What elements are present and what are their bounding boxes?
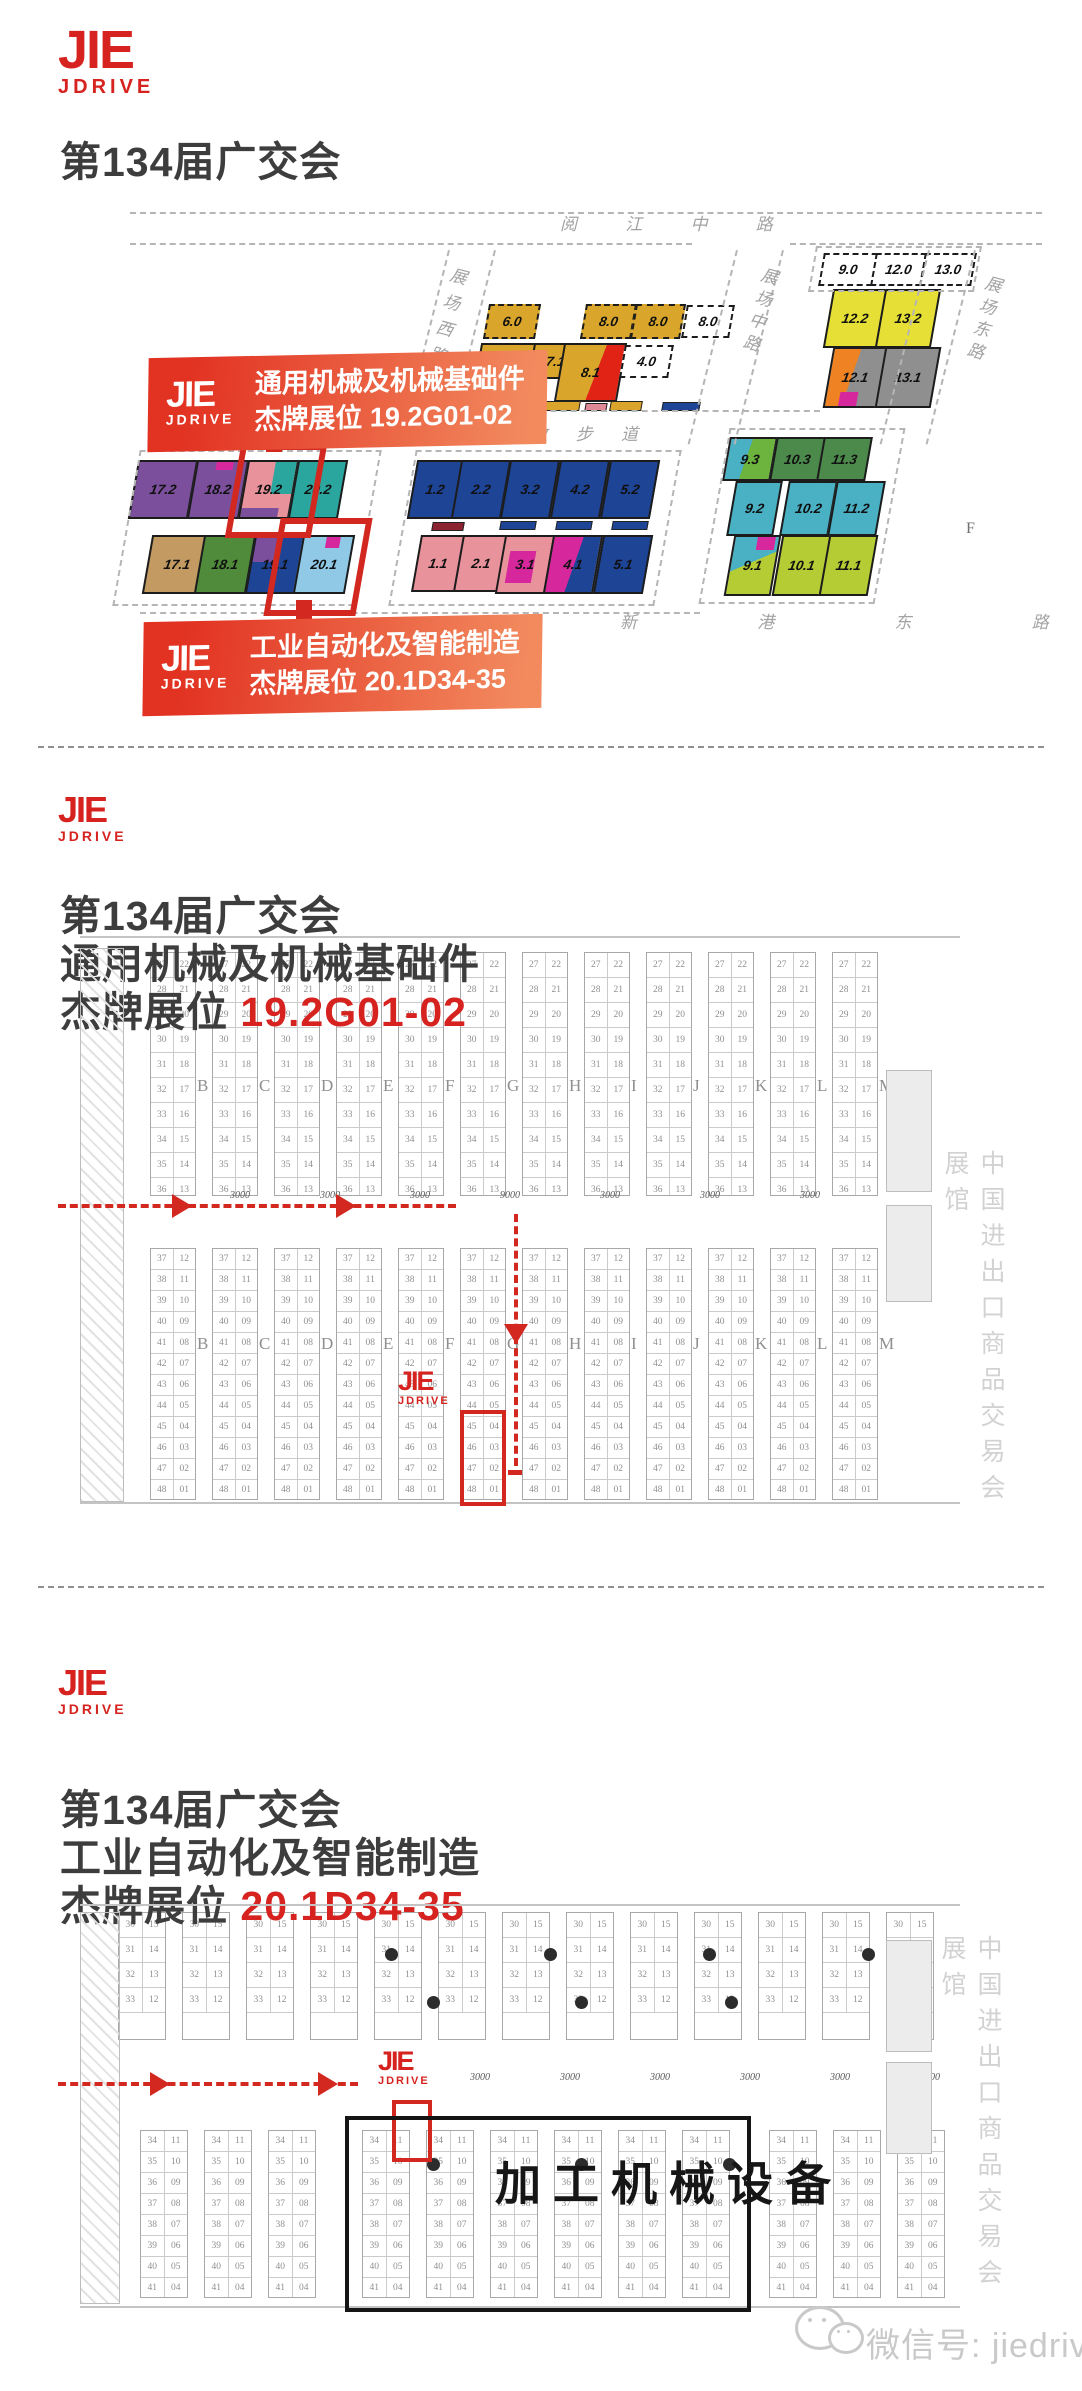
booth-cell-pair: 4104 — [834, 2278, 880, 2298]
booth-number-cell: 19 — [856, 1028, 878, 1052]
hall-label: 8.0 — [647, 314, 668, 329]
booth-number-cell: 31 — [461, 1053, 484, 1077]
booth-number-cell: 08 — [298, 1333, 320, 1353]
callout-line1: 通用机械及机械基础件 — [255, 360, 525, 402]
booth-number-cell: 46 — [585, 1438, 608, 1458]
booth-column: 2722282129203019311832173316341535143613 — [522, 952, 568, 1196]
booth-number-cell: 14 — [174, 1153, 196, 1177]
booth-cell-pair: 3811 — [585, 1270, 629, 1291]
booth-cell-pair: 3015 — [631, 1913, 677, 1938]
booth-number-cell: 45 — [523, 1417, 546, 1437]
road-label-xingang: 新 港 东 路 — [620, 608, 1082, 633]
booth-number-cell: 32 — [247, 1963, 271, 1987]
road-line — [790, 243, 1042, 245]
booth-number-cell: 13 — [546, 1178, 568, 1196]
plan-service-block — [886, 1940, 932, 2052]
booth-number-cell: 41 — [141, 2278, 165, 2298]
hall-block-8.1: 8.1 — [554, 343, 627, 402]
brand-logo-on-plan: JIE JDRIVE — [398, 1370, 450, 1407]
booth-number-cell: 04 — [546, 1417, 568, 1437]
booth-column: 3712381139104009410842074306440545044603… — [212, 1248, 258, 1500]
booth-number-cell: 02 — [298, 1459, 320, 1479]
booth-number-cell: 37 — [141, 2194, 165, 2214]
booth-number-cell: 05 — [546, 1396, 568, 1416]
booth-number-cell: 29 — [771, 1003, 794, 1027]
column-dot — [862, 1948, 875, 1961]
booth-number-cell: 10 — [422, 1291, 444, 1311]
booth-number-cell: 05 — [236, 1396, 258, 1416]
booth-number-cell: 06 — [229, 2236, 252, 2256]
booth-cell-pair: 4603 — [709, 1438, 753, 1459]
hall-label: 12.2 — [841, 311, 870, 326]
booth-number-cell: 36 — [275, 1178, 298, 1196]
booth-column: 3712381139104009410842074306440545044603… — [336, 1248, 382, 1500]
booth-number-cell: 40 — [833, 1312, 856, 1332]
booth-number-cell: 13 — [608, 1178, 630, 1196]
booth-number-cell: 28 — [833, 978, 856, 1002]
booth-cell-pair: 3411 — [205, 2131, 251, 2152]
booth-number-cell: 13 — [271, 1963, 294, 1987]
booth-number-cell: 06 — [484, 1375, 506, 1395]
booth-column: 3712381139104009410842074306440545044603… — [770, 1248, 816, 1500]
dimension-label: 3000 — [230, 1190, 250, 1201]
booth-number-cell: 39 — [275, 1291, 298, 1311]
booth-number-cell: 07 — [794, 1354, 816, 1374]
booth-cell-pair: 3415 — [213, 1128, 257, 1153]
booth-column: 3712381139104009410842074306440545044603… — [708, 1248, 754, 1500]
booth-cell-pair: 3015 — [887, 1913, 933, 1938]
booth-number-cell: 33 — [833, 1103, 856, 1127]
booth-number-cell: 33 — [183, 1988, 207, 2012]
booth-number-cell: 45 — [275, 1417, 298, 1437]
booth-column: 2722282129203019311832173316341535143613 — [708, 952, 754, 1196]
booth-number-cell: 11 — [165, 2131, 188, 2151]
booth-number-cell: 41 — [771, 1333, 794, 1353]
brand-logo-text: JIE — [398, 1370, 450, 1393]
plan-stair-block — [80, 1912, 120, 2304]
booth-number-cell: 07 — [229, 2215, 252, 2235]
booth-number-cell: 15 — [591, 1913, 614, 1937]
booth-cell-pair: 3514 — [275, 1153, 319, 1178]
booth-number-cell: 43 — [709, 1375, 732, 1395]
hall-block-6.0: 6.0 — [483, 304, 541, 339]
booth-number-cell: 12 — [422, 1249, 444, 1269]
booth-number-cell: 14 — [527, 1938, 550, 1962]
booth-cell-pair: 3312 — [695, 1988, 741, 2013]
booth-number-cell: 10 — [670, 1291, 692, 1311]
booth-cell-pair: 3708 — [141, 2194, 187, 2215]
booth-number-cell: 34 — [399, 1128, 422, 1152]
booth-cell-pair: 4504 — [771, 1417, 815, 1438]
booth-cell-pair: 3213 — [759, 1963, 805, 1988]
booth-cell-pair: 4504 — [709, 1417, 753, 1438]
wechat-icon — [828, 2322, 864, 2354]
booth-cell-pair: 3712 — [585, 1249, 629, 1270]
booth-number-cell: 31 — [337, 1053, 360, 1077]
booth-cell-pair: 4207 — [647, 1354, 691, 1375]
booth-number-cell: 07 — [670, 1354, 692, 1374]
plan-service-block — [886, 1205, 932, 1302]
booth-number-cell: 20 — [794, 1003, 816, 1027]
hall-label: 8.1 — [580, 365, 601, 380]
booth-cell-pair: 3118 — [771, 1053, 815, 1078]
booth-cell-pair: 3906 — [834, 2236, 880, 2257]
booth-number-cell: 32 — [567, 1963, 591, 1987]
booth-number-cell: 13 — [783, 1963, 806, 1987]
booth-number-cell: 40 — [770, 2257, 794, 2277]
booth-number-cell: 31 — [399, 1053, 422, 1077]
booth-number-cell: 02 — [236, 1459, 258, 1479]
booth-number-cell: 41 — [205, 2278, 229, 2298]
booth-column: 2722282129203019311832173316341535143613 — [832, 952, 878, 1196]
booth-number-cell: 07 — [360, 1354, 382, 1374]
wechat-icon — [822, 2318, 826, 2322]
booth-number-cell: 30 — [823, 1913, 847, 1937]
booth-number-cell: 14 — [783, 1938, 806, 1962]
booth-number-cell: 35 — [709, 1153, 732, 1177]
booth-number-cell: 08 — [484, 1333, 506, 1353]
road-line — [520, 410, 820, 412]
booth-number-cell: 14 — [856, 1153, 878, 1177]
booth-number-cell: 27 — [709, 953, 732, 977]
booth-number-cell: 31 — [759, 1938, 783, 1962]
booth-number-cell: 46 — [275, 1438, 298, 1458]
booth-number-cell: 27 — [523, 953, 546, 977]
booth-number-cell: 30 — [585, 1028, 608, 1052]
callout-line1: 工业自动化及智能制造 — [250, 624, 520, 666]
booth-cell-pair: 3213 — [439, 1963, 485, 1988]
booth-number-cell: 14 — [719, 1938, 742, 1962]
booth-cell-pair: 4801 — [337, 1480, 381, 1500]
booth-number-cell: 10 — [293, 2152, 316, 2172]
booth-number-cell: 30 — [523, 1028, 546, 1052]
booth-cell-pair: 3712 — [275, 1249, 319, 1270]
booth-cell-pair: 3613 — [275, 1178, 319, 1196]
booth-number-cell: 28 — [771, 978, 794, 1002]
booth-cell-pair: 4603 — [399, 1438, 443, 1459]
hall-block-12.2: 12.2 — [823, 289, 887, 348]
booth-cell-pair: 2920 — [461, 1003, 505, 1028]
booth-cell-pair: 3217 — [399, 1078, 443, 1103]
column-letter: B — [197, 1334, 208, 1354]
booth-number-cell: 45 — [771, 1417, 794, 1437]
brand-logo-text: JIE — [58, 28, 154, 74]
booth-cell-pair: 4504 — [213, 1417, 257, 1438]
booth-number-cell: 33 — [247, 1988, 271, 2012]
booth-cell-pair: 4207 — [461, 1354, 505, 1375]
booth-number: 20.1D34-35 — [240, 1883, 464, 1929]
hall-label: 8.0 — [598, 314, 619, 329]
booth-number-cell: 18 — [236, 1053, 258, 1077]
booth-number-cell: 33 — [151, 1103, 174, 1127]
booth-number-cell: 41 — [399, 1333, 422, 1353]
booth-number-cell: 21 — [794, 978, 816, 1002]
booth-cell-pair: 3910 — [709, 1291, 753, 1312]
hall-label: 12.1 — [841, 370, 870, 385]
booth-number-cell: 33 — [337, 1103, 360, 1127]
booth-number-cell: 42 — [833, 1354, 856, 1374]
brand-logo-on-plan: JIE JDRIVE — [378, 2050, 430, 2087]
booth-cell-pair: 3906 — [269, 2236, 315, 2257]
booth-number-cell: 38 — [141, 2215, 165, 2235]
booth-number-cell: 44 — [833, 1396, 856, 1416]
booth-number-cell: 12 — [783, 1988, 806, 2012]
booth-number-cell: 32 — [695, 1963, 719, 1987]
booth-number-cell: 17 — [856, 1078, 878, 1102]
booth-cell-pair: 4306 — [151, 1375, 195, 1396]
booth-number-cell: 42 — [337, 1354, 360, 1374]
booth-number-cell: 35 — [275, 1153, 298, 1177]
brand-logo-subtext: JDRIVE — [58, 77, 154, 97]
booth-number-cell: 04 — [608, 1417, 630, 1437]
booth-number-cell: 12 — [236, 1249, 258, 1269]
booth-column: 3712381139104009410842074306440545044603… — [274, 1248, 320, 1500]
brand-logo-text: JIE — [58, 795, 127, 826]
booth-number-cell: 01 — [732, 1480, 754, 1500]
booth-number-cell: 15 — [608, 1128, 630, 1152]
booth-number-cell: 08 — [856, 1333, 878, 1353]
booth-number-cell: 37 — [709, 1249, 732, 1269]
booth-cell-pair: 3217 — [647, 1078, 691, 1103]
column-letter: E — [383, 1334, 393, 1354]
booth-number-cell: 12 — [207, 1988, 230, 2012]
booth-number-cell: 04 — [858, 2278, 881, 2298]
booth-cell-pair: 3312 — [439, 1988, 485, 2013]
booth-number-cell: 38 — [647, 1270, 670, 1290]
booth-number-cell: 12 — [655, 1988, 678, 2012]
booth-column: 3712381139104009410842074306440545044603… — [832, 1248, 878, 1500]
booth-cell-pair: 4603 — [833, 1438, 877, 1459]
booth-number-cell: 22 — [608, 953, 630, 977]
booth-cell-pair: 4801 — [647, 1480, 691, 1500]
booth-number-cell: 04 — [670, 1417, 692, 1437]
booth-number-cell: 31 — [151, 1053, 174, 1077]
booth-number-cell: 03 — [608, 1438, 630, 1458]
booth-cell-pair: 3609 — [205, 2173, 251, 2194]
booth-number-cell: 06 — [360, 1375, 382, 1395]
booth-cell-pair: 4009 — [523, 1312, 567, 1333]
brand-logo: JIE JDRIVE — [161, 642, 230, 692]
booth-number-cell: 42 — [709, 1354, 732, 1374]
callout-line2: 杰牌展位 20.1D34-35 — [249, 660, 519, 702]
booth-cell-pair: 3613 — [399, 1178, 443, 1196]
booth-number-cell: 08 — [293, 2194, 316, 2214]
booth-callout-automation: JIE JDRIVE 工业自动化及智能制造 杰牌展位 20.1D34-35 — [142, 614, 542, 716]
wechat-id-label: 微信号: jiedrive — [866, 2318, 1082, 2367]
booth-cell-pair: 4306 — [213, 1375, 257, 1396]
booth-number-cell: 06 — [546, 1375, 568, 1395]
booth-number-cell: 34 — [337, 1128, 360, 1152]
booth-cell-pair: 3411 — [141, 2131, 187, 2152]
booth-number-cell: 08 — [174, 1333, 196, 1353]
booth-number-cell: 12 — [856, 1249, 878, 1269]
column-letter: E — [383, 1076, 393, 1096]
booth-number-cell: 18 — [484, 1053, 506, 1077]
booth-number-cell: 47 — [151, 1459, 174, 1479]
booth-number-cell: 43 — [151, 1375, 174, 1395]
hall-label: 8.0 — [697, 314, 718, 329]
booth-number-cell: 29 — [585, 1003, 608, 1027]
booth-cell-pair: 3118 — [523, 1053, 567, 1078]
booth-number-cell: 47 — [275, 1459, 298, 1479]
booth-number-cell: 05 — [360, 1396, 382, 1416]
booth-number-cell: 21 — [732, 978, 754, 1002]
booth-number-cell: 31 — [631, 1938, 655, 1962]
booth-cell-pair: 3514 — [647, 1153, 691, 1178]
booth-number-cell: 43 — [771, 1375, 794, 1395]
booth-number-cell: 46 — [647, 1438, 670, 1458]
booth-cell-pair: 3514 — [399, 1153, 443, 1178]
machining-zone-outline — [345, 2116, 751, 2312]
booth-number-cell: 14 — [271, 1938, 294, 1962]
highlight-box-20-1 — [263, 518, 372, 616]
booth-number-cell: 42 — [585, 1354, 608, 1374]
zone-label: 加工机械设备 — [495, 2148, 843, 2214]
wechat-icon — [808, 2318, 812, 2322]
booth-number-cell: 33 — [695, 1988, 719, 2012]
booth-cell-pair: 3811 — [709, 1270, 753, 1291]
booth-number-cell: 38 — [585, 1270, 608, 1290]
booth-number-cell: 34 — [709, 1128, 732, 1152]
booth-number-cell: 40 — [337, 1312, 360, 1332]
booth-number-cell: 07 — [293, 2215, 316, 2235]
booth-number-cell: 01 — [670, 1480, 692, 1500]
booth-number-cell: 31 — [375, 1938, 399, 1962]
booth-cell-pair: 4801 — [833, 1480, 877, 1500]
booth-number-cell: 30 — [631, 1913, 655, 1937]
dimension-label: 3000 — [560, 2072, 580, 2083]
booth-number-cell: 16 — [670, 1103, 692, 1127]
booth-number-cell: 13 — [236, 1178, 258, 1196]
booth-cell-pair: 3114 — [503, 1938, 549, 1963]
booth-cell-pair: 4009 — [275, 1312, 319, 1333]
booth-cell-pair: 4108 — [461, 1333, 505, 1354]
booth-cell-pair: 4005 — [141, 2257, 187, 2278]
booth-number-cell: 29 — [523, 1003, 546, 1027]
booth-number-cell: 48 — [771, 1480, 794, 1500]
booth-number-cell: 44 — [709, 1396, 732, 1416]
booth-number-cell: 15 — [527, 1913, 550, 1937]
booth-number-cell: 15 — [847, 1913, 870, 1937]
booth-number-cell: 16 — [236, 1103, 258, 1127]
venue-side-text: 中国进出口商品交易会展馆 — [936, 1150, 1008, 1510]
booth-number-cell: 15 — [360, 1128, 382, 1152]
booth-cell-pair: 3807 — [834, 2215, 880, 2236]
booth-number-cell: 06 — [794, 2236, 817, 2256]
booth-cell-pair: 3811 — [399, 1270, 443, 1291]
booth-number-cell: 39 — [834, 2236, 858, 2256]
booth-number-cell: 03 — [174, 1438, 196, 1458]
booth-number-cell: 19 — [484, 1028, 506, 1052]
booth-column: 3712381139104009410842074306440545044603… — [584, 1248, 630, 1500]
page-title: 第134届广交会 — [60, 128, 341, 188]
booth-column: 34113510360937083807390640054104 — [268, 2130, 316, 2298]
booth-number-cell: 34 — [213, 1128, 236, 1152]
booth-number-cell: 20 — [484, 1003, 506, 1027]
booth-cell-pair: 3019 — [833, 1028, 877, 1053]
section-separator — [38, 1586, 1044, 1588]
column-letter: J — [693, 1334, 700, 1354]
booth-cell-pair: 4207 — [585, 1354, 629, 1375]
booth-number-cell: 37 — [151, 1249, 174, 1269]
hall-block-12.1: 12.1 — [823, 347, 888, 408]
booth-number-cell: 20 — [732, 1003, 754, 1027]
booth-number-cell: 10 — [794, 1291, 816, 1311]
booth-number-cell: 40 — [834, 2257, 858, 2277]
booth-cell-pair: 4603 — [213, 1438, 257, 1459]
booth-number-cell: 01 — [174, 1480, 196, 1500]
booth-cell-pair: 2821 — [709, 978, 753, 1003]
booth-number-cell: 41 — [461, 1333, 484, 1353]
booth-cell-pair: 4108 — [399, 1333, 443, 1354]
booth-number-cell: 48 — [151, 1480, 174, 1500]
booth-number-cell: 34 — [205, 2131, 229, 2151]
booth-number-cell: 09 — [360, 1312, 382, 1332]
brand-logo-text: JIE — [161, 642, 230, 674]
booth-cell-pair: 3613 — [647, 1178, 691, 1196]
booth-number-cell: 36 — [585, 1178, 608, 1196]
booth-number-cell: 32 — [585, 1078, 608, 1102]
booth-number-cell: 31 — [275, 1053, 298, 1077]
booth-cell-pair: 3312 — [311, 1988, 357, 2013]
booth-number-cell: 14 — [143, 1938, 166, 1962]
booth-number-cell: 31 — [823, 1938, 847, 1962]
booth-cell-pair: 3415 — [709, 1128, 753, 1153]
booth-number-cell: 32 — [823, 1963, 847, 1987]
booth-number-cell: 09 — [484, 1312, 506, 1332]
booth-number-cell: 10 — [858, 2152, 881, 2172]
booth-number-cell: 34 — [833, 1128, 856, 1152]
booth-number-cell: 19 — [608, 1028, 630, 1052]
hall-label: 4.0 — [636, 354, 657, 369]
booth-number-cell: 37 — [275, 1249, 298, 1269]
booth-cell-pair: 4405 — [151, 1396, 195, 1417]
booth-cell-pair: 3613 — [523, 1178, 567, 1196]
booth-number-cell: 07 — [794, 2215, 817, 2235]
booth-number-cell: 39 — [771, 1291, 794, 1311]
booth-number-cell: 15 — [655, 1913, 678, 1937]
booth-cell-pair: 3316 — [523, 1103, 567, 1128]
booth-number-cell: 31 — [709, 1053, 732, 1077]
booth-number-cell: 36 — [523, 1178, 546, 1196]
booth-cell-pair: 3415 — [399, 1128, 443, 1153]
booth-number-cell: 39 — [770, 2236, 794, 2256]
booth-cell-pair: 3415 — [833, 1128, 877, 1153]
column-letter: I — [631, 1334, 637, 1354]
booth-number-cell: 31 — [833, 1053, 856, 1077]
column-dot — [703, 1948, 716, 1961]
booth-cell-pair: 4702 — [275, 1459, 319, 1480]
booth-cell-pair: 3415 — [523, 1128, 567, 1153]
callout-text: 通用机械及机械基础件 杰牌展位 19.2G01-02 — [254, 360, 525, 438]
booth-cell-pair: 4306 — [585, 1375, 629, 1396]
booth-number-cell: 08 — [165, 2194, 188, 2214]
booth-cell-pair: 4405 — [709, 1396, 753, 1417]
booth-number-cell: 18 — [298, 1053, 320, 1077]
booth-cell-pair: 3415 — [647, 1128, 691, 1153]
booth-cell-pair: 3910 — [213, 1291, 257, 1312]
booth-cell-pair: 3217 — [337, 1078, 381, 1103]
booth-number-cell: 12 — [463, 1988, 486, 2012]
booth-number-cell: 36 — [647, 1178, 670, 1196]
booth-cell-pair: 2920 — [647, 1003, 691, 1028]
booth-cell-pair: 3415 — [771, 1128, 815, 1153]
brand-logo-subtext: JDRIVE — [378, 2076, 430, 2087]
booth-number-cell: 12 — [399, 1988, 422, 2012]
booth-number-cell: 45 — [151, 1417, 174, 1437]
booth-number-cell: 37 — [461, 1249, 484, 1269]
venue-side-text: 中国进出口商品交易会展馆 — [933, 1935, 1005, 2295]
